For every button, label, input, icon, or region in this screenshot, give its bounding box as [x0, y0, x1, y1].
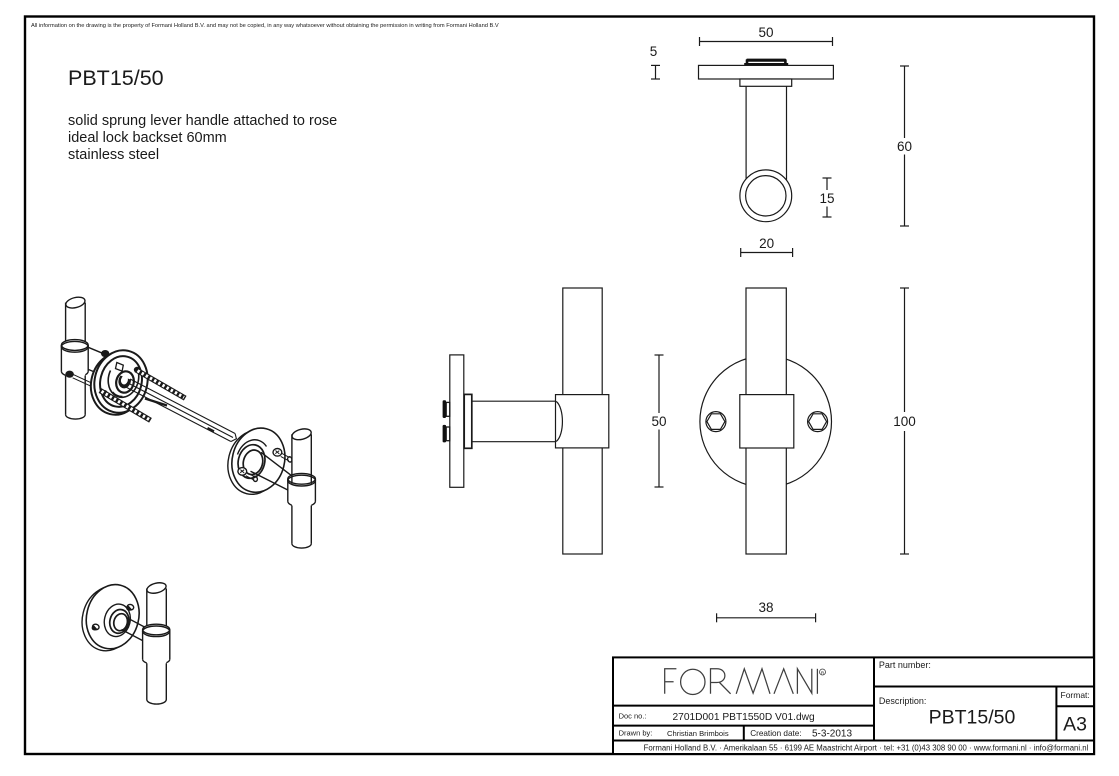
svg-text:20: 20 [759, 236, 774, 251]
svg-text:PBT15/50: PBT15/50 [929, 707, 1016, 729]
svg-text:PBT15/50: PBT15/50 [68, 66, 164, 90]
svg-text:stainless steel: stainless steel [68, 147, 159, 163]
svg-text:Part number:: Part number: [879, 660, 931, 670]
svg-text:Description:: Description: [879, 696, 927, 706]
svg-text:Christian Brimbois: Christian Brimbois [667, 729, 729, 738]
svg-text:All information on the drawing: All information on the drawing is the pr… [31, 23, 499, 29]
svg-text:Format:: Format: [1061, 690, 1090, 700]
svg-text:5-3-2013: 5-3-2013 [812, 729, 852, 740]
svg-text:Formani Holland B.V. · Amerik: Formani Holland B.V. · Amerikalaan 55 · … [644, 744, 1089, 753]
svg-text:ideal lock backset 60mm: ideal lock backset 60mm [68, 130, 227, 146]
svg-text:A3: A3 [1063, 714, 1087, 736]
svg-text:100: 100 [893, 414, 916, 429]
svg-text:Drawn by:: Drawn by: [619, 729, 653, 738]
svg-text:5: 5 [650, 44, 658, 59]
svg-text:solid sprung lever handle atta: solid sprung lever handle attached to ro… [68, 113, 337, 129]
svg-text:Creation date:: Creation date: [750, 729, 801, 738]
svg-text:60: 60 [897, 139, 912, 154]
svg-text:Doc no.:: Doc no.: [619, 712, 647, 721]
svg-text:50: 50 [651, 414, 666, 429]
svg-text:15: 15 [819, 191, 834, 206]
svg-text:38: 38 [758, 600, 773, 615]
svg-text:2701D001 PBT1550D V01.dwg: 2701D001 PBT1550D V01.dwg [673, 712, 815, 723]
svg-text:50: 50 [758, 25, 773, 40]
